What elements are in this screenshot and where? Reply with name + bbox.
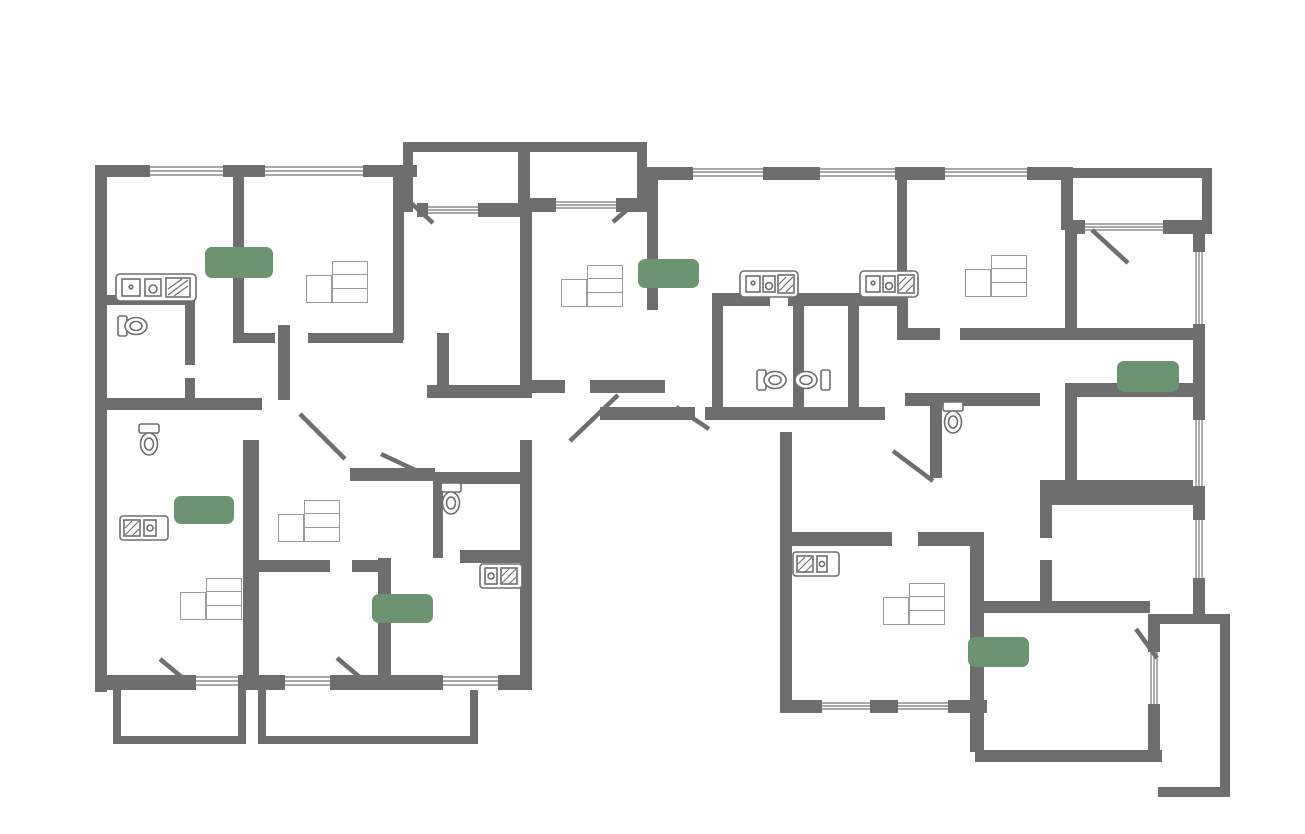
spec-table-2k-645 <box>883 583 945 625</box>
kitchen-sink-icon <box>120 516 168 540</box>
toilet-icon <box>795 370 830 390</box>
area-badge-640 <box>1117 361 1179 392</box>
kitchen-sink-icon <box>740 271 798 297</box>
floor-plan <box>0 0 1305 834</box>
floorplan-page <box>0 0 1305 834</box>
toilet-icon <box>943 402 963 433</box>
kitchen-sink-icon <box>480 564 522 588</box>
area-badge-553 <box>205 247 273 278</box>
toilet-icon <box>118 316 147 336</box>
spec-table-2k-553 <box>306 261 368 303</box>
area-badge-242 <box>174 496 234 524</box>
kitchen-sink-icon <box>793 552 839 576</box>
area-badge-645 <box>968 637 1029 667</box>
spec-table-1k-354 <box>561 265 623 307</box>
spec-table-3k-640 <box>965 255 1027 297</box>
windows <box>150 163 1205 713</box>
area-badge-354 <box>638 259 699 288</box>
toilet-icon <box>139 424 159 455</box>
area-badge-353 <box>372 594 433 623</box>
walls <box>95 142 1230 797</box>
spec-table-1k-353 <box>278 500 340 542</box>
toilet-icon <box>441 483 461 514</box>
kitchen-sink-icon <box>860 271 918 297</box>
spec-table-1k-242 <box>180 578 242 620</box>
kitchen-sink-icon <box>116 274 196 301</box>
toilet-icon <box>757 370 786 390</box>
